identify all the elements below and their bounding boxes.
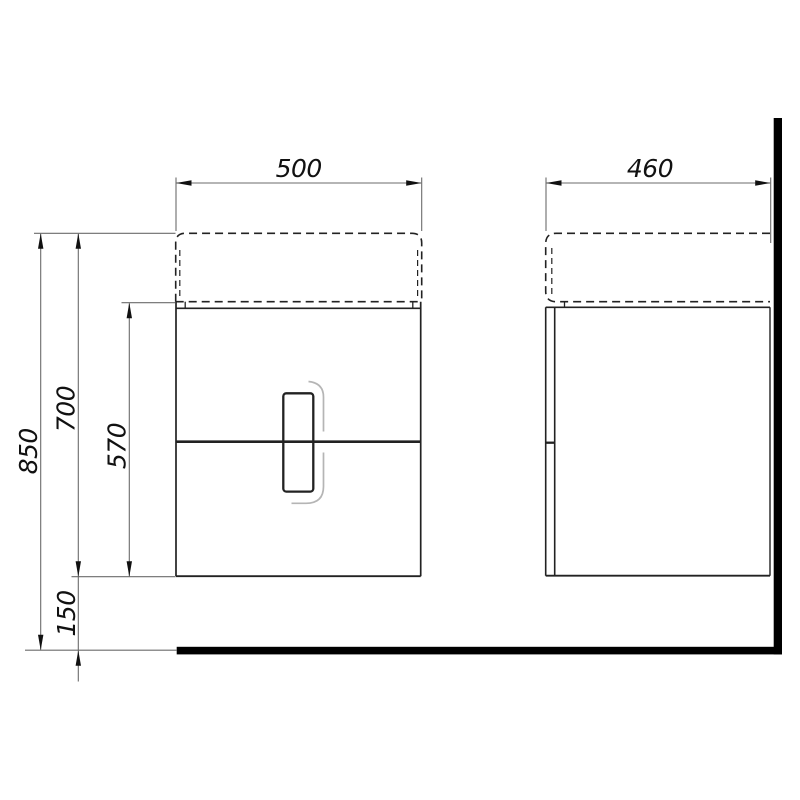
dimension-label-460: 460 <box>627 154 673 183</box>
arrowhead-bottom <box>127 561 132 577</box>
dimension-label-150: 150 <box>52 590 81 636</box>
arrowhead-bottom <box>38 635 43 651</box>
dimension-unit-height-and-clearance: 700 150 <box>52 233 82 681</box>
vanity-dimension-drawing: 500 460 850 700 150 <box>0 0 800 800</box>
arrowhead-left <box>546 180 562 185</box>
dimension-front-width: 500 <box>176 154 422 231</box>
arrowhead-top <box>127 303 132 319</box>
arrowhead-right <box>406 180 422 185</box>
floor-section <box>177 647 782 655</box>
arrowhead-top <box>38 233 43 249</box>
dimension-label-570: 570 <box>102 423 131 469</box>
wall-section <box>774 118 782 654</box>
arrowhead-cabinet-bottom <box>76 561 81 577</box>
dimension-total-height: 850 <box>14 233 43 650</box>
dimension-cabinet-height: 570 <box>102 303 132 577</box>
dimension-label-700: 700 <box>52 386 81 432</box>
arrowhead-right <box>755 180 771 185</box>
side-view <box>546 233 770 575</box>
front-view <box>176 233 422 576</box>
technical-drawing-page: 500 460 850 700 150 <box>0 0 800 800</box>
dimension-label-850: 850 <box>14 428 43 474</box>
handle-shadow-lower-curve <box>292 453 324 504</box>
side-washbasin-outline <box>546 233 770 301</box>
dimension-side-depth: 460 <box>546 154 771 243</box>
handle-shadow-upper-curve <box>309 382 324 432</box>
front-washbasin-outline <box>176 233 422 301</box>
arrowhead-left <box>176 180 192 185</box>
dimension-label-500: 500 <box>276 154 322 183</box>
arrowhead-top <box>76 233 81 249</box>
arrowhead-below-floor <box>76 650 81 666</box>
